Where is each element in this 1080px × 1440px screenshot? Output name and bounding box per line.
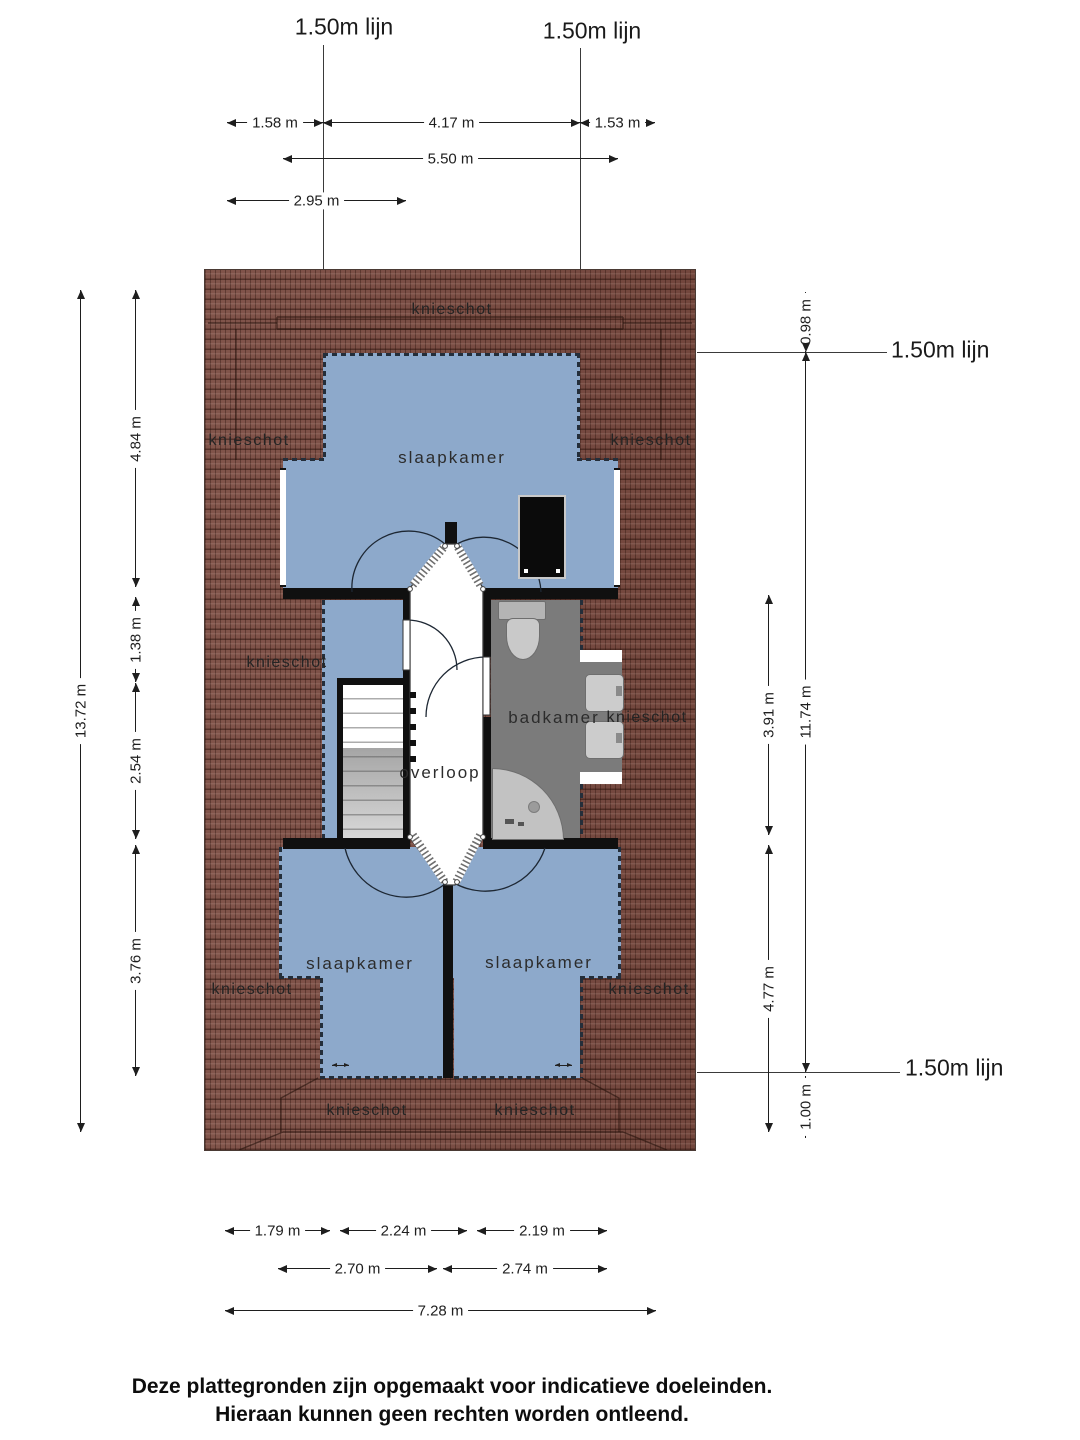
dimension-label: 4.84 m [126,410,145,468]
reference-line-vertical-right [580,48,581,270]
dimension-label: 3.91 m [759,686,778,744]
mini-dimension-marker [555,1065,572,1066]
dimension-top-2: 4.17 m [323,122,580,123]
reference-line-label-right-lower: 1.50m lijn [905,1055,1003,1082]
dimension-left-3: 2.54 m [135,683,136,839]
label-knieschot-lower-left: knieschot [211,981,292,999]
skylight-dot [556,569,560,573]
label-knieschot-middle-left: knieschot [246,654,327,672]
label-bedroom-top: slaapkamer [398,448,506,468]
floor-plan: knieschot knieschot knieschot slaapkamer… [205,270,695,1150]
dimension-bottom-4: 2.70 m [278,1268,437,1269]
label-knieschot-middle-right: knieschot [606,709,687,727]
dimension-left-total: 13.72 m [80,290,81,1132]
reference-line-label-right-upper: 1.50m lijn [891,337,989,364]
dimension-label: 1.53 m [590,114,646,131]
label-knieschot-upper-right: knieschot [610,432,691,450]
dimension-bottom-total: 7.28 m [225,1310,656,1311]
label-knieschot-upper-left: knieschot [208,432,289,450]
dimension-label: 2.74 m [497,1260,553,1277]
dimension-label: 2.54 m [126,732,145,790]
dimension-label: 13.72 m [71,678,90,744]
floor-plan-page: 1.50m lijn 1.50m lijn 1.50m lijn 1.50m l… [0,0,1080,1440]
dimension-label: 1.58 m [247,114,303,131]
label-landing: overloop [399,763,480,783]
dimension-label: 1.00 m [796,1078,815,1136]
dimension-left-4: 3.76 m [135,845,136,1076]
dimension-label: 7.28 m [413,1302,469,1319]
dimension-label: 2.19 m [514,1222,570,1239]
dimension-top-4: 5.50 m [283,158,618,159]
reference-line-horizontal-lower [697,1072,900,1073]
label-knieschot-top: knieschot [411,301,492,319]
dimension-label: 11.74 m [796,679,815,744]
dimension-label: 4.17 m [424,114,480,131]
skylight-dot [524,569,528,573]
dimension-label: 2.95 m [289,192,345,209]
dimension-right-4: 4.77 m [768,845,769,1132]
skylight-window [518,495,566,579]
dimension-label: 2.24 m [376,1222,432,1239]
dimension-left-2: 1.38 m [135,597,136,682]
door-leaf [403,620,410,670]
door-leaf [483,657,490,715]
dimension-label: 1.38 m [126,611,145,669]
label-knieschot-lower-right: knieschot [608,981,689,999]
dimension-right-5: 1.00 m [805,1076,806,1138]
dimension-right-2: 3.91 m [768,595,769,835]
reference-line-horizontal-upper [697,352,887,353]
dimension-bottom-3: 2.19 m [477,1230,607,1231]
dimension-bottom-1: 1.79 m [225,1230,330,1231]
dimension-label: 1.79 m [250,1222,306,1239]
mini-dimension-marker [332,1065,349,1066]
label-knieschot-bottom-left: knieschot [326,1102,407,1120]
dimension-label: 2.70 m [330,1260,386,1277]
landing-shape [410,544,483,885]
dimension-label: 4.77 m [759,960,778,1018]
dimension-top-1: 1.58 m [227,122,323,123]
disclaimer-line-2: Hieraan kunnen geen rechten worden ontle… [215,1403,689,1427]
dimension-right-1: 0.98 m [805,292,806,352]
dimension-bottom-2: 2.24 m [340,1230,467,1231]
label-bathroom: badkamer [508,708,600,728]
dimension-top-5: 2.95 m [227,200,406,201]
dimension-right-3: 11.74 m [805,352,806,1072]
reference-line-label-top-left: 1.50m lijn [295,14,393,41]
label-bedroom-bottom-left: slaapkamer [306,954,414,974]
label-knieschot-bottom-right: knieschot [494,1102,575,1120]
dimension-left-1: 4.84 m [135,290,136,587]
reference-line-label-top-right: 1.50m lijn [543,18,641,45]
dimension-top-3: 1.53 m [580,122,655,123]
dimension-label: 3.76 m [126,932,145,990]
dimension-bottom-5: 2.74 m [443,1268,607,1269]
dimension-label: 0.98 m [796,293,815,351]
label-bedroom-bottom-right: slaapkamer [485,953,593,973]
dimension-label: 5.50 m [423,150,479,167]
disclaimer-line-1: Deze plattegronden zijn opgemaakt voor i… [132,1375,773,1399]
